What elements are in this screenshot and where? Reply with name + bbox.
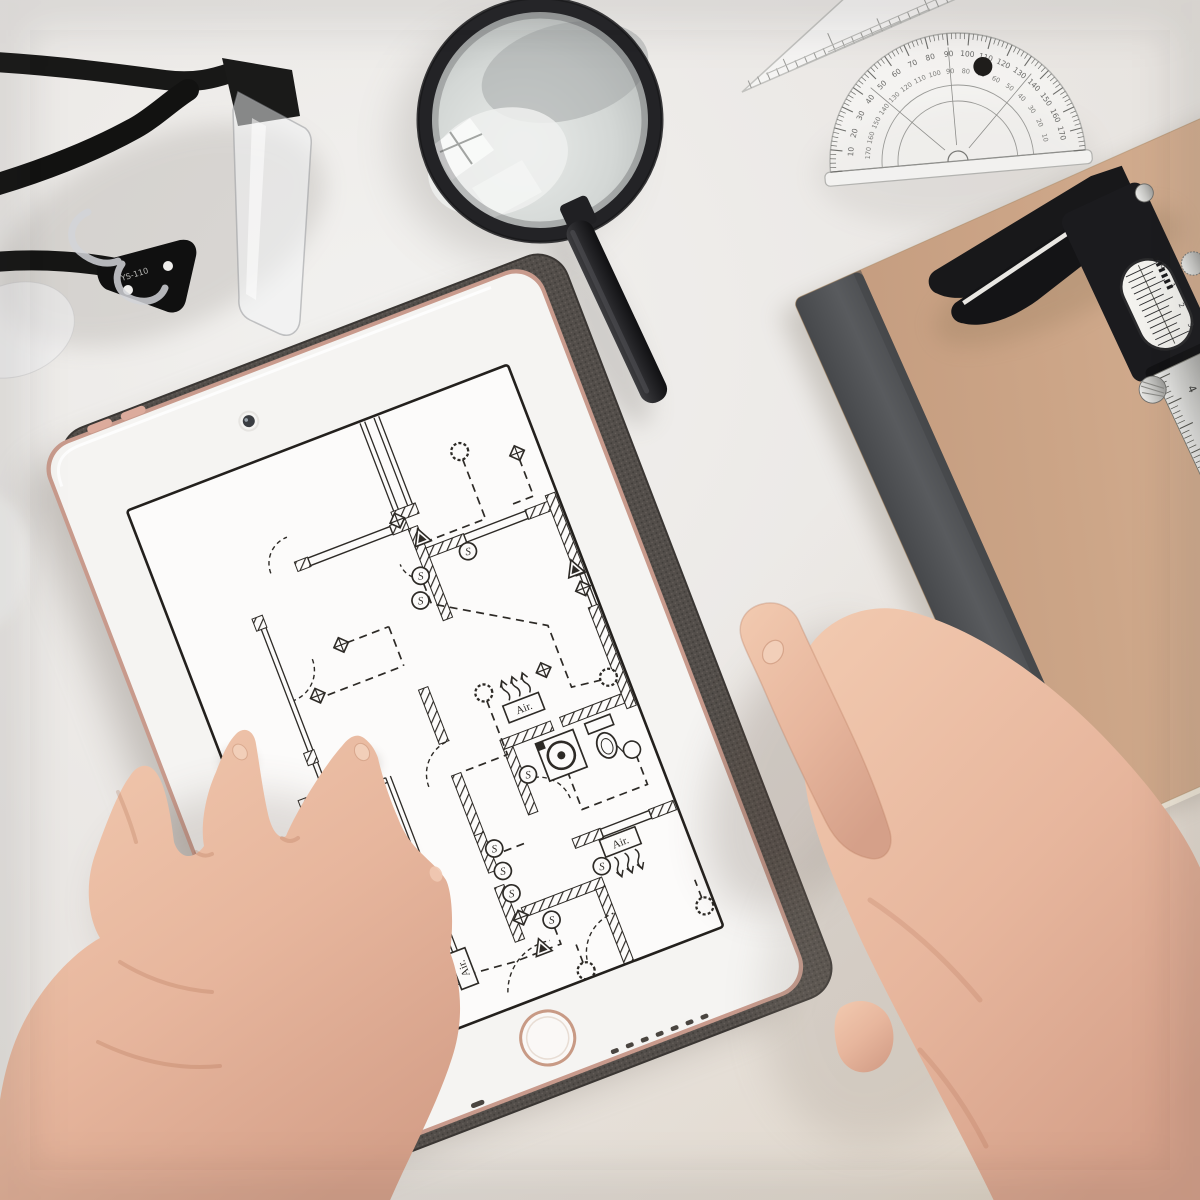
glasses-ear-tip-hole bbox=[163, 261, 173, 271]
protractor-number: 10 bbox=[846, 146, 856, 157]
right-fingertip-under-tablet bbox=[835, 1001, 894, 1072]
glasses-lens bbox=[233, 92, 311, 335]
protractor-number: 170 bbox=[864, 147, 873, 160]
photo-scene: YS-110 10203040506070809010011012 bbox=[0, 0, 1200, 1200]
protractor-number: 80 bbox=[961, 67, 970, 76]
protractor-number: 100 bbox=[960, 49, 975, 59]
